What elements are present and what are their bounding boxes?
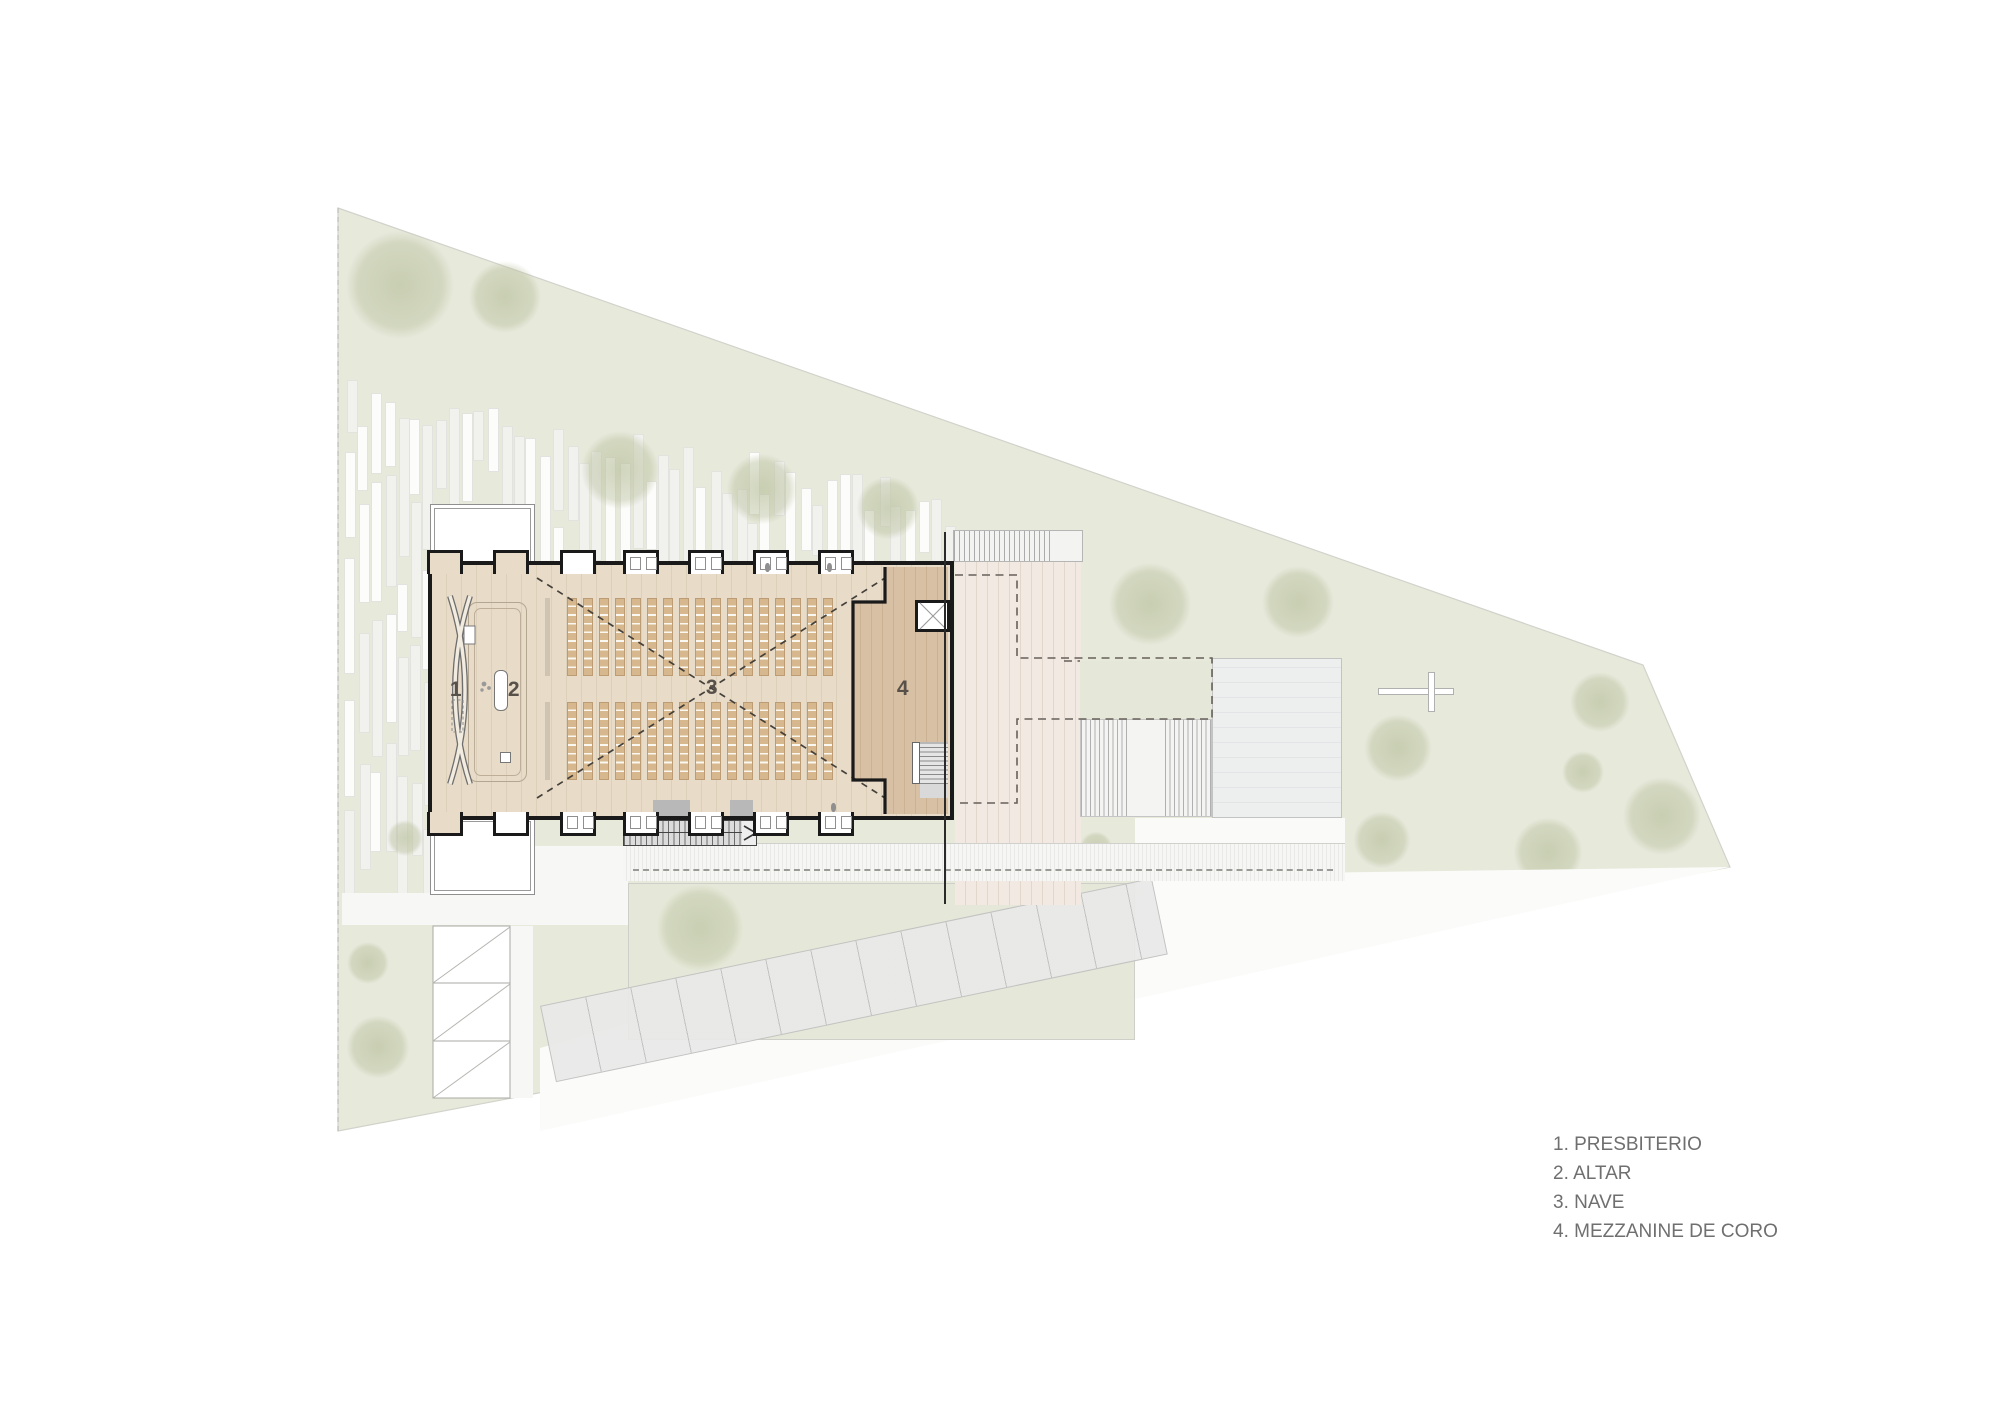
plan-number-3: 3: [706, 676, 718, 700]
legend-item-presbiterio: 1. PRESBITERIO: [1553, 1130, 1778, 1159]
site-plan-canvas: 1234 1. PRESBITERIO 2. ALTAR 3. NAVE 4. …: [0, 0, 2000, 1414]
plan-number-2: 2: [508, 678, 520, 702]
plan-number-1: 1: [450, 678, 462, 702]
plan-number-4: 4: [897, 677, 909, 701]
legend: 1. PRESBITERIO 2. ALTAR 3. NAVE 4. MEZZA…: [1553, 1130, 1778, 1246]
legend-item-altar: 2. ALTAR: [1553, 1159, 1778, 1188]
legend-item-mezzanine: 4. MEZZANINE DE CORO: [1553, 1217, 1778, 1246]
legend-item-nave: 3. NAVE: [1553, 1188, 1778, 1217]
